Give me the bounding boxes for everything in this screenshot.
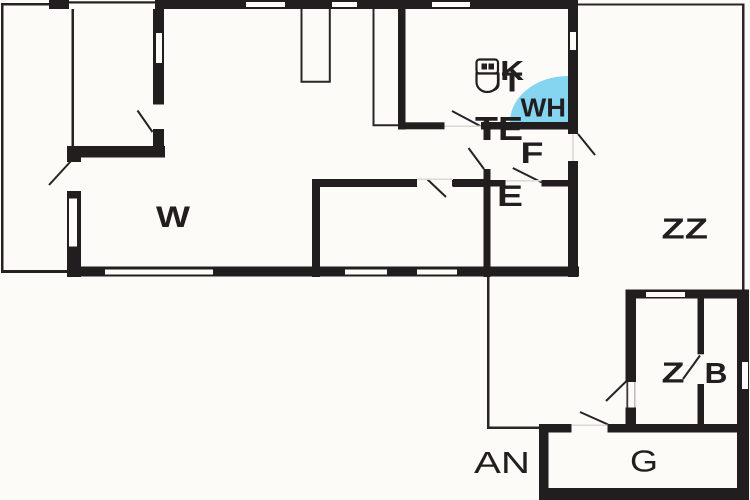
svg-text:TE: TE: [475, 110, 523, 147]
svg-text:AN: AN: [474, 445, 530, 480]
svg-text:B: B: [705, 358, 728, 390]
svg-text:W: W: [156, 201, 191, 234]
svg-text:ZZ: ZZ: [662, 214, 709, 246]
svg-text:WH: WH: [521, 93, 567, 123]
svg-text:E: E: [497, 180, 523, 213]
svg-text:G: G: [630, 444, 658, 479]
svg-text:F: F: [521, 137, 544, 170]
svg-text:Z: Z: [662, 358, 685, 390]
